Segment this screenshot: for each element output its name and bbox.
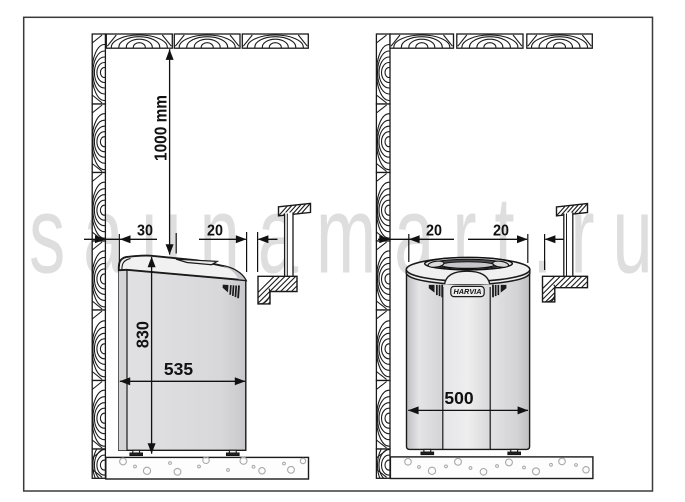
svg-text:HARVIA: HARVIA <box>454 287 482 296</box>
svg-text:20: 20 <box>207 223 223 240</box>
svg-text:535: 535 <box>164 359 193 379</box>
svg-text:1000 mm: 1000 mm <box>151 95 171 161</box>
svg-text:20: 20 <box>426 223 442 240</box>
svg-text:30: 30 <box>137 223 153 240</box>
svg-text:20: 20 <box>493 223 509 240</box>
svg-text:830: 830 <box>132 321 152 348</box>
svg-text:500: 500 <box>444 388 473 408</box>
